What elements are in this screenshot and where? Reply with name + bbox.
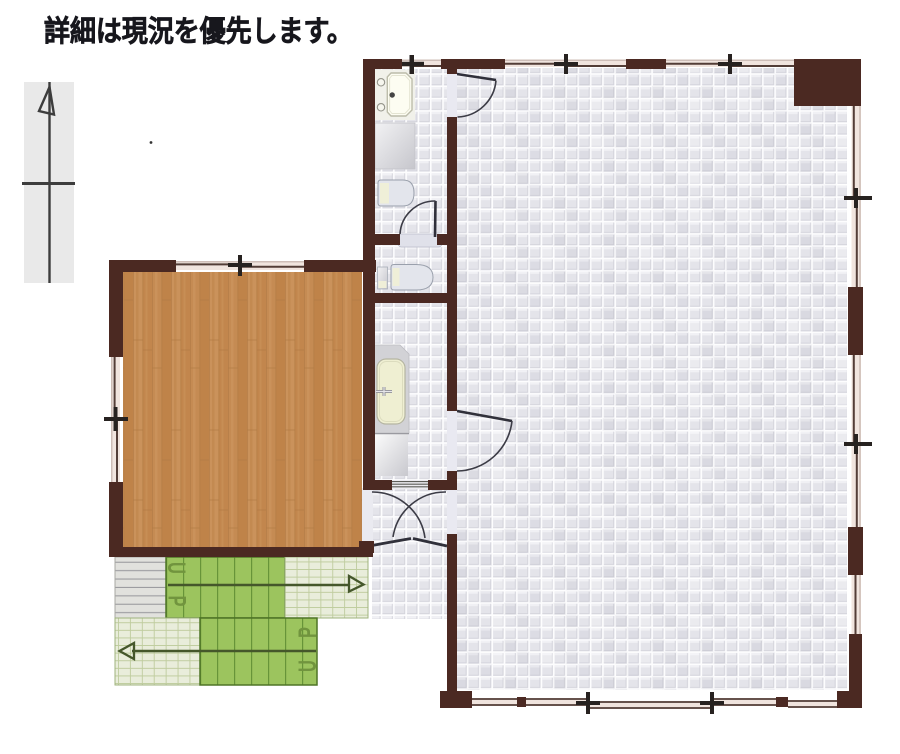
svg-text:U: U bbox=[295, 660, 322, 672]
svg-text:P: P bbox=[163, 596, 190, 607]
svg-text:U: U bbox=[162, 562, 189, 574]
svg-text:P: P bbox=[295, 627, 322, 638]
